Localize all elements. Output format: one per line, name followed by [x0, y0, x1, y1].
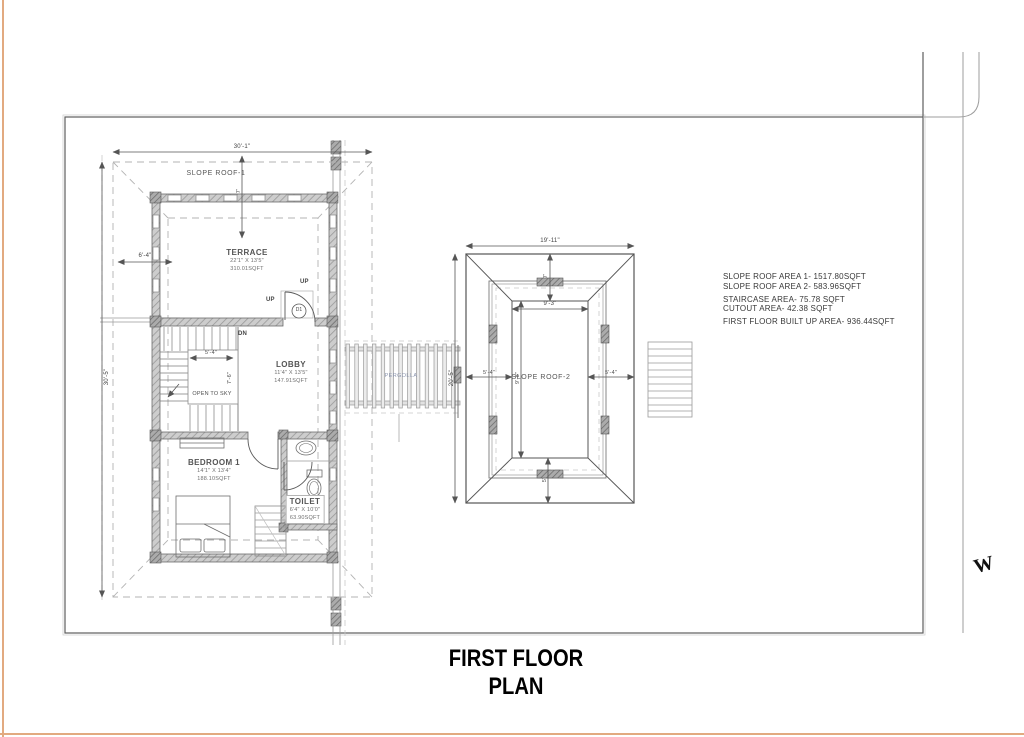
floor-plan-sheet: SLOPE ROOF-1 TERRACE 22'1" X 13'5" 310.0… [0, 0, 1024, 737]
up-mark-lobby: UP [266, 297, 275, 303]
dim-terrace-roof-drop: 7' [236, 189, 242, 194]
bedroom1-area: 188.10SQFT [188, 476, 240, 483]
dim-roof-offset: 6'-4" [139, 253, 152, 259]
dim-plan-width: 30'-1" [234, 144, 250, 150]
bedroom-furniture [176, 438, 286, 557]
floor-plan-drawing [0, 0, 1024, 737]
bedroom1-name: BEDROOM 1 [188, 458, 240, 468]
road-lines [923, 52, 979, 633]
toilet-area: 63.90SQFT [290, 515, 321, 522]
lobby-name: LOBBY [274, 360, 308, 370]
dim-roof2-ridge-width: 9'-3" [544, 301, 557, 307]
dim-stair-well-width: 5'-4" [205, 350, 217, 356]
slope-roof-1-label: SLOPE ROOF-1 [187, 170, 246, 177]
dim-roof2-eave-bottom: 5' [542, 478, 548, 483]
dim-plan-height: 30'-5" [104, 369, 110, 385]
lobby-size: 11'4" X 13'5" [274, 370, 308, 377]
dim-roof2-eave-right: 5'-4" [605, 370, 617, 376]
plan-title: FIRST FLOOR PLAN [424, 645, 609, 701]
slope-roof-2-structure [466, 254, 692, 503]
dim-roof2-ridge-drop: 7' [543, 274, 549, 279]
bedroom1-room-label: BEDROOM 1 14'1" X 13'4" 188.10SQFT [188, 458, 240, 483]
toilet-size: 6'4" X 10'0" [290, 507, 321, 514]
open-to-sky-label: OPEN TO SKY [192, 391, 231, 397]
terrace-size: 22'1" X 13'5" [226, 258, 267, 265]
dim-roof2-core-height: 9'-8" [515, 372, 521, 384]
lobby-area: 147.91SQFT [274, 378, 308, 385]
down-mark: DN [238, 331, 247, 337]
note-staircase-area: STAIRCASE AREA- 75.78 SQFT [723, 295, 845, 304]
windows [153, 195, 336, 511]
door-1-tag: D1 [296, 307, 302, 313]
note-slope-roof-area-2: SLOPE ROOF AREA 2- 583.96SQFT [723, 282, 861, 291]
note-cutout-area: CUTOUT AREA- 42.38 SQFT [723, 304, 833, 313]
terrace-name: TERRACE [226, 248, 267, 258]
lobby-room-label: LOBBY 11'4" X 13'5" 147.91SQFT [274, 360, 308, 385]
toilet-name: TOILET [290, 497, 321, 507]
up-mark-terrace: UP [300, 279, 309, 285]
note-built-up-area: FIRST FLOOR BUILT UP AREA- 936.44SQFT [723, 317, 895, 326]
dim-roof2-height: 20'-5" [449, 370, 455, 386]
terrace-area: 310.01SQFT [226, 266, 267, 273]
terrace-room-label: TERRACE 22'1" X 13'5" 310.01SQFT [226, 248, 267, 273]
dim-stair-well-height: 7'-6" [227, 372, 233, 384]
dim-roof2-eave-left: 5'-4" [483, 370, 495, 376]
toilet-room-label: TOILET 6'4" X 10'0" 63.90SQFT [286, 495, 325, 524]
pergola [345, 341, 461, 442]
note-slope-roof-area-1: SLOPE ROOF AREA 1- 1517.80SQFT [723, 272, 866, 281]
pergola-label: PERGOLLA [385, 373, 418, 379]
dim-roof2-width: 19'-11" [540, 238, 560, 244]
bedroom1-size: 14'1" X 13'4" [188, 468, 240, 475]
